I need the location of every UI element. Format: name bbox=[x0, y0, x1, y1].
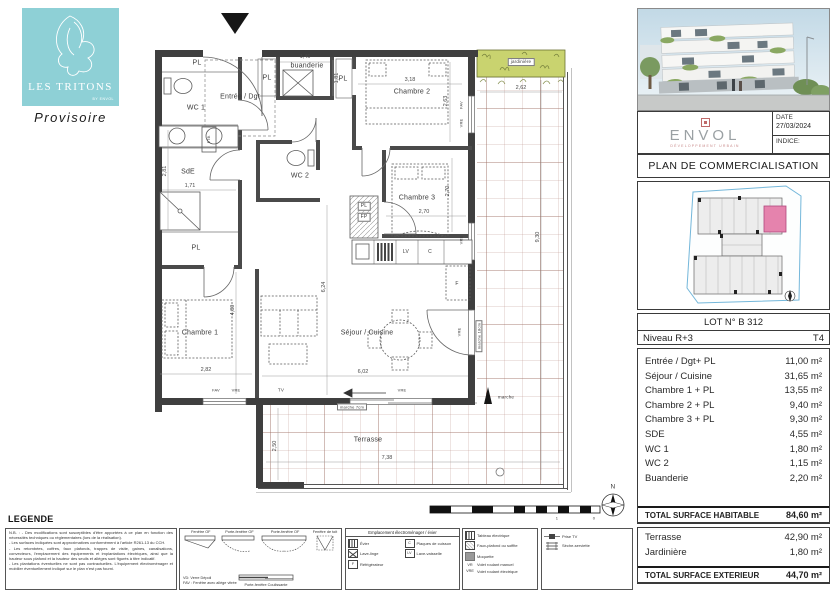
coffee-table-icon bbox=[269, 344, 307, 364]
exterior-surfaces-table: Terrasse42,90 m² Jardinière1,80 m² TOTAL… bbox=[637, 527, 830, 584]
fridge-legend-icon: F bbox=[348, 560, 358, 569]
developer-tagline: DÉVELOPPEMENT URBAIN bbox=[670, 144, 739, 148]
developer-block: ENVOL DÉVELOPPEMENT URBAIN DATE 27/03/20… bbox=[637, 111, 830, 154]
label-marche18: marche 18cm bbox=[475, 320, 482, 352]
label-fridge: F bbox=[455, 281, 458, 287]
legend-misc: Prise TV Sèche-serviette bbox=[541, 528, 633, 590]
date-value: 27/03/2024 bbox=[776, 123, 826, 130]
vanity-sinks-icon bbox=[159, 126, 238, 147]
room-label-sejour: Séjour / Cuisine bbox=[341, 330, 394, 337]
label-fp: FP bbox=[358, 213, 371, 222]
dim-terrace-right-h: 9,30 bbox=[535, 232, 541, 243]
legend-window-of: Fenêtre OF bbox=[184, 530, 218, 553]
table-row: WC 11,80 m² bbox=[638, 443, 829, 458]
developer-name: ENVOL bbox=[670, 128, 741, 143]
room-label-wc2: WC 2 bbox=[291, 173, 309, 180]
sink-legend-icon bbox=[348, 539, 358, 548]
dim-ch3-w: 2,70 bbox=[419, 209, 430, 215]
building-render-photo bbox=[637, 8, 830, 111]
washing-machine-legend-icon bbox=[348, 549, 358, 558]
legend-disclaimer: N.B. : - Des modifications sont suscepti… bbox=[5, 528, 177, 590]
legend-window-notes: VD: Verre Dépoli FAV : Fenêtre avec allè… bbox=[183, 576, 237, 586]
room-label-wc1: WC 1 bbox=[187, 105, 205, 112]
electric-panel-icon bbox=[465, 531, 475, 540]
washing-machine-icon bbox=[283, 70, 313, 96]
legend-title: LEGENDE bbox=[8, 514, 54, 524]
label-c: C bbox=[428, 249, 432, 255]
dim-sde-h: 2,81 bbox=[162, 166, 168, 177]
table-row: Chambre 1 + PL13,55 m² bbox=[638, 384, 829, 399]
legend-appliances-header: Emplacement électroménager / évier bbox=[346, 529, 459, 537]
dim-terrace-bottom-w: 7,38 bbox=[382, 455, 393, 461]
room-label-pl-2: PL bbox=[192, 245, 201, 252]
false-ceiling-icon bbox=[465, 541, 475, 550]
date-label: DATE bbox=[776, 114, 826, 121]
envol-mark-icon bbox=[701, 118, 710, 127]
date-indice-block: DATE 27/03/2024 INDICE: bbox=[772, 112, 829, 153]
sliding-door-icon bbox=[238, 574, 294, 582]
towel-radiator-icon bbox=[544, 542, 560, 550]
label-marche: marche bbox=[498, 395, 514, 400]
room-label-chambre1: Chambre 1 bbox=[182, 330, 218, 337]
dim-terrace-bottom-h: 2,50 bbox=[272, 441, 278, 452]
table-row: SDE4,55 m² bbox=[638, 428, 829, 443]
legend-door-window-of2: Porte-fenêtre OF bbox=[261, 530, 309, 553]
step-arrow-sejour bbox=[344, 389, 386, 397]
doors bbox=[203, 57, 472, 355]
dim-ch2-h: 2,63 bbox=[443, 96, 449, 107]
table-row: Jardinière1,80 m² bbox=[638, 546, 829, 561]
label-marche7: marche 7cm bbox=[337, 403, 367, 410]
double-door-window-icon bbox=[261, 534, 309, 552]
dim-ch3-h: 2,70 bbox=[445, 186, 451, 197]
table-row: Buanderie2,20 m² bbox=[638, 472, 829, 487]
dim-sde-w: 1,71 bbox=[185, 183, 196, 189]
table-row: Chambre 2 + PL9,40 m² bbox=[638, 399, 829, 414]
vr-abbr: VR bbox=[465, 563, 475, 567]
door-window-of-icon bbox=[221, 534, 257, 552]
label-etb: ETB. bbox=[207, 135, 211, 144]
logo-title: LES TRITONS bbox=[22, 81, 119, 93]
room-label-sde: SdE bbox=[181, 169, 195, 176]
tv-socket-icon bbox=[544, 533, 560, 540]
lot-number: LOT N° B 312 bbox=[638, 314, 829, 331]
highlighted-unit bbox=[764, 206, 786, 232]
envol-logo: ENVOL DÉVELOPPEMENT URBAIN bbox=[638, 112, 772, 153]
triton-shell-icon bbox=[22, 8, 119, 78]
window-of-icon bbox=[184, 534, 218, 550]
toilet-wc1-icon bbox=[164, 78, 192, 94]
table-row: Terrasse42,90 m² bbox=[638, 531, 829, 546]
dim-terrace-top: 2,62 bbox=[516, 85, 527, 91]
legend-windows: Fenêtre OF Porte-fenêtre OF Porte-fenêtr… bbox=[179, 528, 342, 590]
room-label-entree: Entrée / Dgt bbox=[220, 94, 260, 101]
surfaces-table: Entrée / Dgt+ PL11,00 m² Séjour / Cuisin… bbox=[637, 348, 830, 524]
label-fav-1: FAV bbox=[212, 388, 220, 393]
room-label-buanderie: buanderie bbox=[291, 63, 324, 70]
legend-roof-window: Fenêtre de toit bbox=[313, 530, 337, 553]
table-row: Entrée / Dgt+ PL11,00 m² bbox=[638, 355, 829, 370]
lot-type: T4 bbox=[813, 333, 824, 344]
dim-buanderie-w: 1,46 bbox=[300, 54, 311, 60]
entry-arrow-icon bbox=[221, 13, 249, 34]
room-label-pl-3: PL bbox=[263, 75, 272, 82]
compass-n-label: N bbox=[611, 484, 616, 491]
scale-bar bbox=[430, 506, 600, 513]
label-lv: LV bbox=[403, 249, 409, 255]
toilet-wc2-icon bbox=[287, 150, 314, 166]
carpet-icon bbox=[465, 552, 475, 561]
dim-buanderie-h: 1,81 bbox=[334, 73, 340, 84]
legend-sliding-door: Porte-fenêtre Coulissante bbox=[238, 574, 294, 587]
table-row: WC 21,15 m² bbox=[638, 457, 829, 472]
label-vre-1: VRE bbox=[232, 388, 241, 393]
label-vre-3: VRE bbox=[459, 119, 464, 128]
legend-door-window-of: Porte-fenêtre OF bbox=[221, 530, 257, 553]
sofa-icon bbox=[261, 296, 317, 336]
dim-ch1-h: 4,80 bbox=[230, 305, 236, 316]
kitchen-counter-icon bbox=[352, 240, 472, 264]
scale-tick-1: 1 bbox=[556, 516, 558, 521]
table-row: Chambre 3 + PL9,30 m² bbox=[638, 413, 829, 428]
plan-sheet: LES TRITONS BY ENVOL Provisoire PL WC 1 … bbox=[0, 0, 835, 595]
total-habitable-row: TOTAL SURFACE HABITABLE 84,60 m² bbox=[638, 506, 829, 522]
room-label-terrasse: Terrasse bbox=[354, 437, 382, 444]
room-label-chambre2: Chambre 2 bbox=[394, 89, 430, 96]
logo-subtitle: BY ENVOL bbox=[93, 97, 114, 101]
shower-icon bbox=[160, 192, 200, 230]
room-label-chambre3: Chambre 3 bbox=[399, 195, 435, 202]
room-label-pl-1: PL bbox=[193, 60, 202, 67]
label-pl-5: PL bbox=[358, 202, 371, 211]
vre-abbr: VRE bbox=[465, 569, 475, 573]
lot-level: Niveau R+3 bbox=[643, 333, 693, 344]
terrace bbox=[256, 68, 572, 493]
north-compass-icon bbox=[602, 494, 624, 516]
label-jardiniere: jardinière bbox=[508, 58, 535, 66]
document-title: PLAN DE COMMERCIALISATION bbox=[637, 154, 830, 178]
label-vre-4: VRE bbox=[459, 236, 464, 245]
dim-sejour-w: 6,02 bbox=[358, 369, 369, 375]
legend-appliances: Emplacement électroménager / évier Évier… bbox=[345, 528, 460, 590]
key-plan bbox=[637, 181, 830, 310]
furniture bbox=[159, 60, 472, 370]
scale-tick-0: 0 bbox=[593, 516, 595, 521]
hob-legend-icon: C bbox=[405, 539, 415, 548]
label-vre-2: VRE bbox=[398, 388, 407, 393]
provisoire-label: Provisoire bbox=[22, 110, 119, 125]
dim-ch2-w: 3,18 bbox=[405, 77, 416, 83]
dim-sejour-h: 6,24 bbox=[321, 282, 327, 293]
label-vre-5: VRE bbox=[457, 328, 462, 337]
total-exterior-row: TOTAL SURFACE EXTERIEUR 44,70 m² bbox=[638, 566, 829, 582]
dishwasher-legend-icon: LV bbox=[405, 549, 415, 558]
label-fav-2: FAV bbox=[459, 101, 464, 109]
les-tritons-logo: LES TRITONS BY ENVOL bbox=[22, 8, 119, 106]
dining-table-icon bbox=[368, 310, 432, 370]
legend-electric: Tableau électrique Faux-plafond ou soffi… bbox=[462, 528, 538, 590]
lot-block: LOT N° B 312 Niveau R+3 T4 bbox=[637, 313, 830, 345]
label-tv: TV bbox=[278, 388, 284, 393]
roof-window-icon bbox=[315, 534, 335, 552]
indice-label: INDICE: bbox=[773, 135, 829, 153]
table-row: Séjour / Cuisine31,65 m² bbox=[638, 370, 829, 385]
dim-ch1-w: 2,82 bbox=[201, 367, 212, 373]
